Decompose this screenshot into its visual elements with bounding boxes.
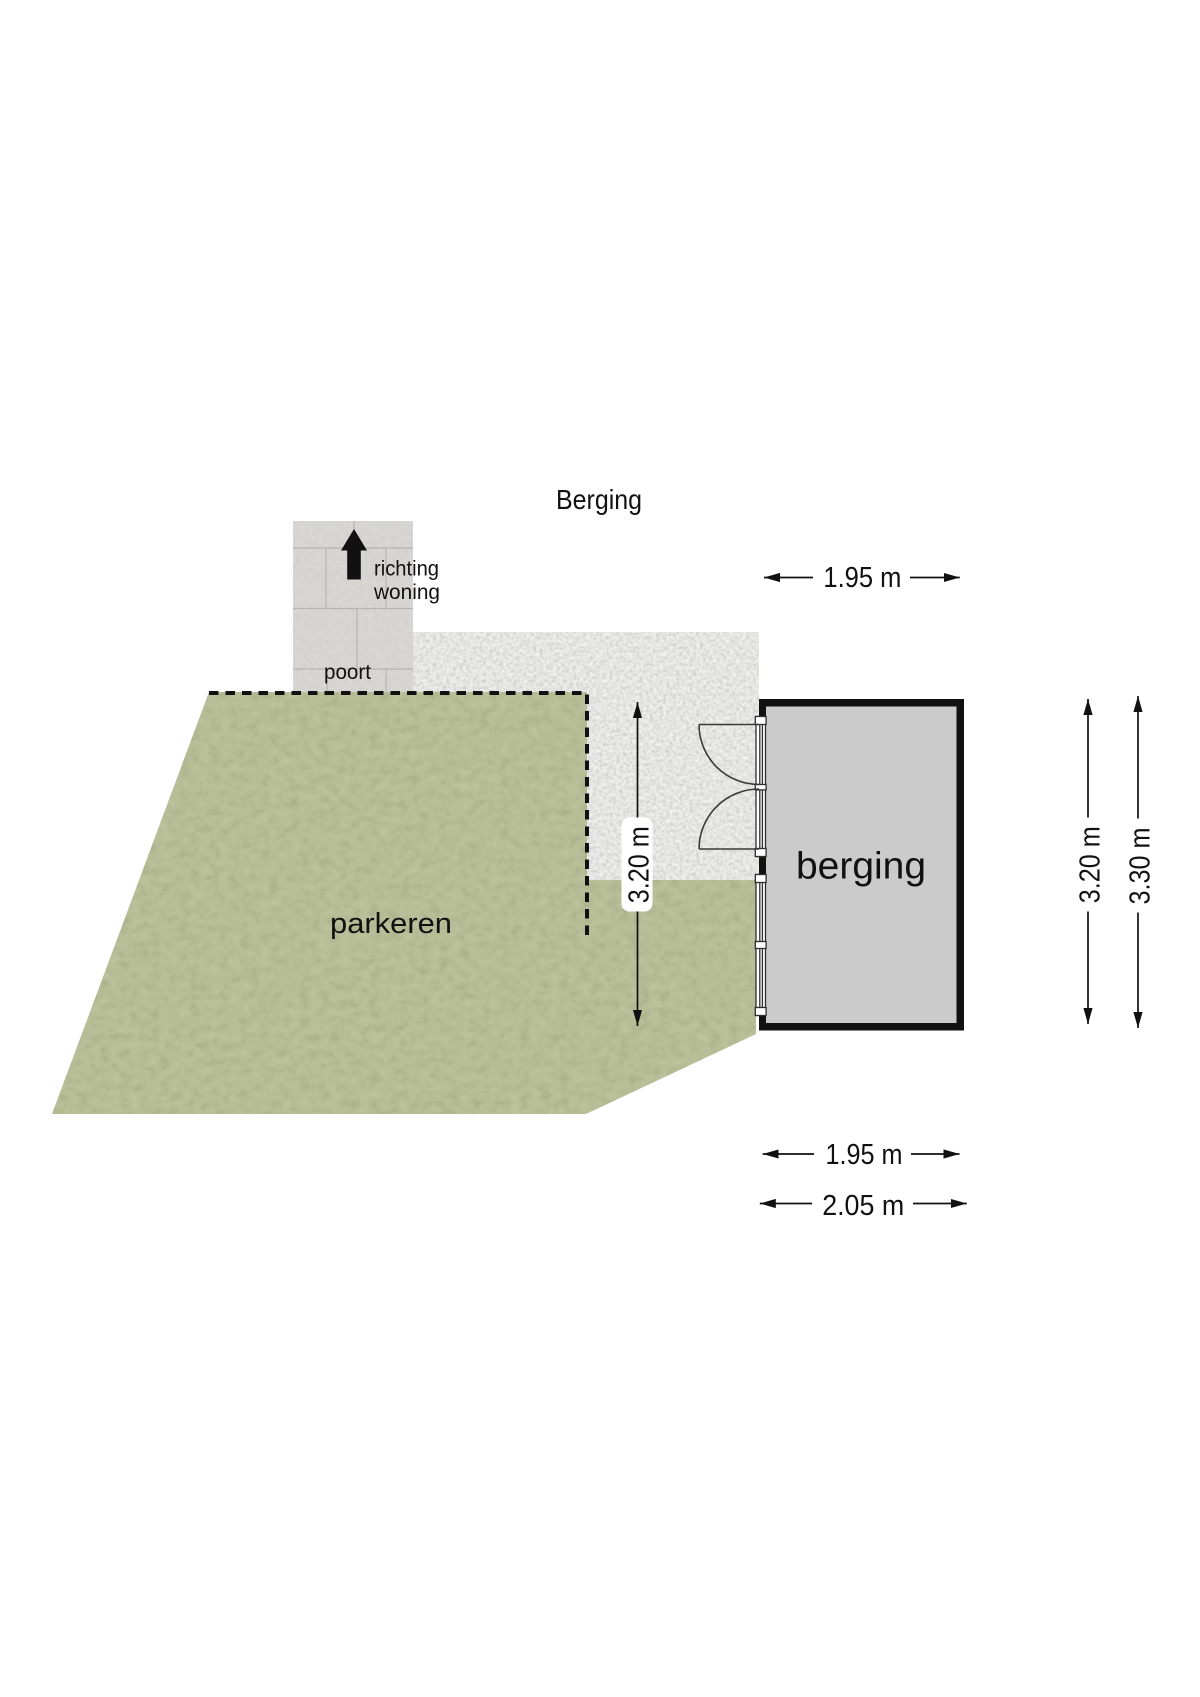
svg-text:1.95 m: 1.95 m <box>826 1139 903 1171</box>
svg-text:woning: woning <box>373 580 440 604</box>
svg-text:1.95 m: 1.95 m <box>823 562 901 594</box>
svg-text:Berging: Berging <box>556 484 642 515</box>
svg-text:poort: poort <box>324 660 371 684</box>
svg-text:berging: berging <box>796 845 926 887</box>
svg-text:3.20 m: 3.20 m <box>1075 826 1107 903</box>
svg-text:2.05 m: 2.05 m <box>822 1190 904 1222</box>
svg-text:3.30 m: 3.30 m <box>1125 828 1157 905</box>
svg-text:3.20 m: 3.20 m <box>623 826 655 903</box>
svg-text:richting: richting <box>374 556 439 580</box>
svg-text:parkeren: parkeren <box>330 908 452 940</box>
